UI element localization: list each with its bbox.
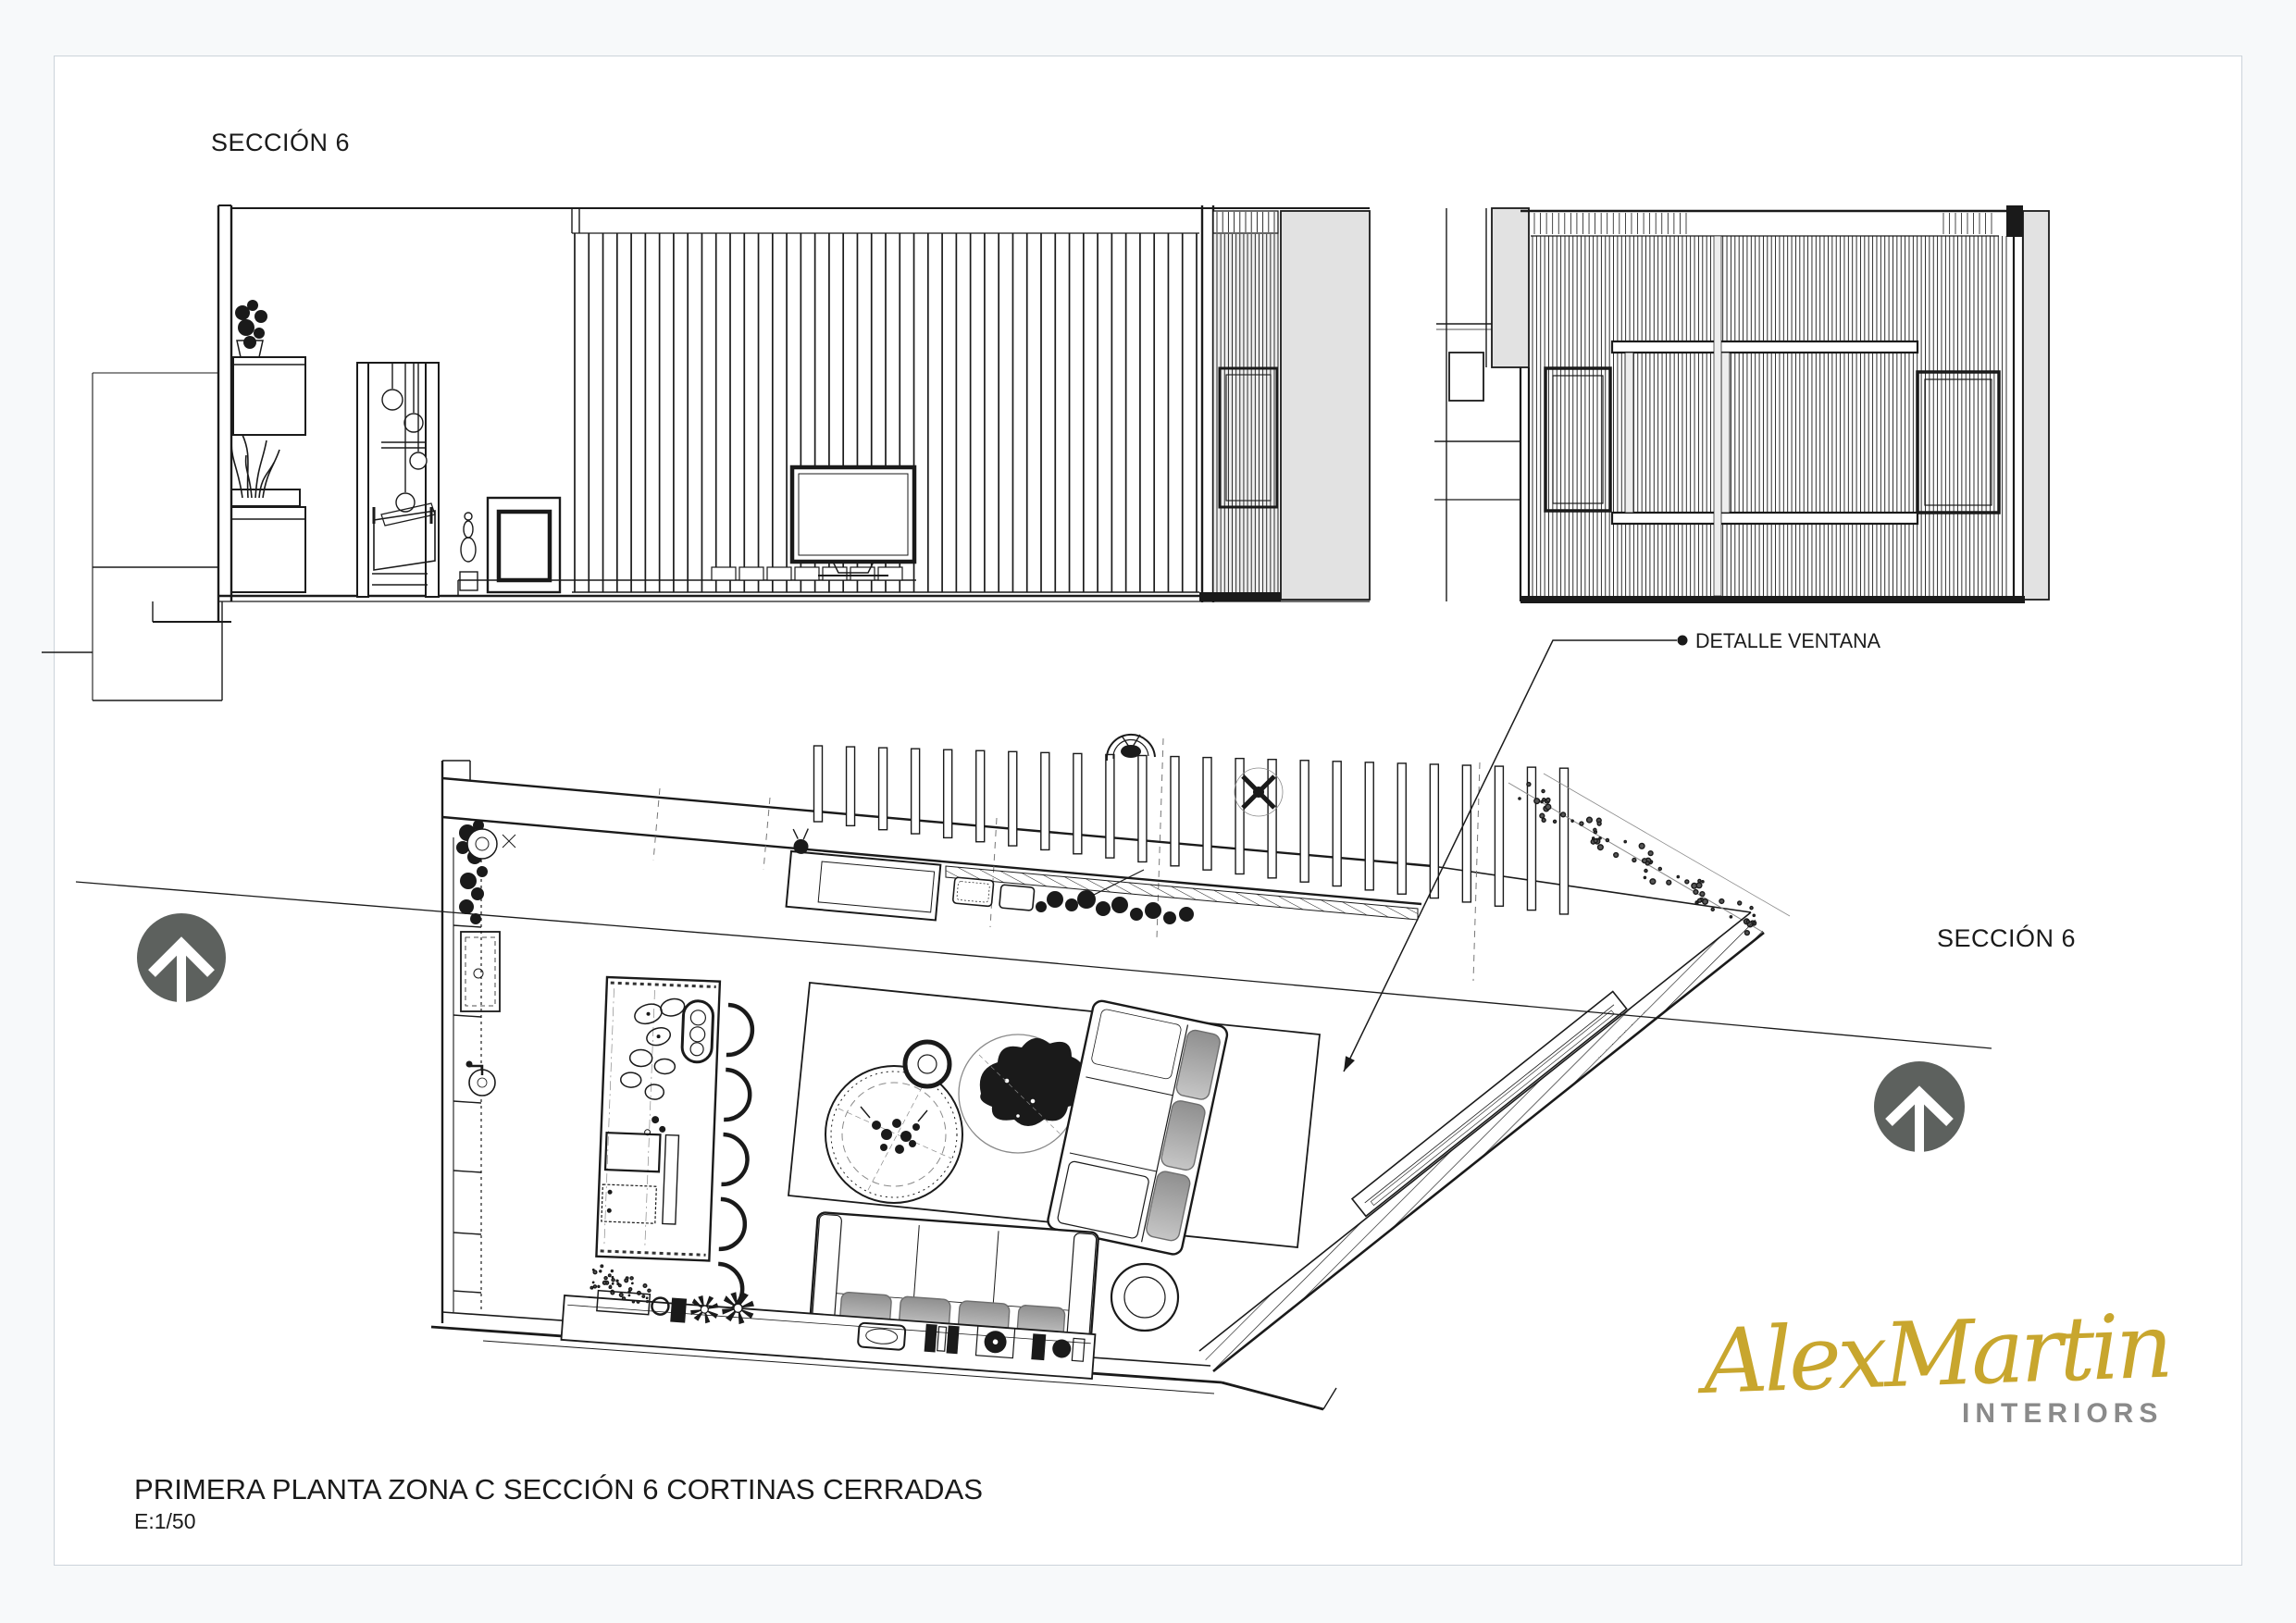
- window-detail: [1434, 205, 2049, 603]
- leader-arrow-icon: [1339, 1056, 1355, 1073]
- kitchen-island: [594, 977, 754, 1315]
- tray: [999, 885, 1035, 911]
- detail-artwork: [1449, 353, 1483, 401]
- leader-line: [1344, 640, 1677, 1072]
- logo: AlexMartin INTERIORS: [1694, 1294, 2171, 1429]
- section-label-right: SECCIÓN 6: [1937, 923, 2076, 952]
- north-arrow-icon: [1874, 1061, 1965, 1152]
- tray: [952, 877, 993, 907]
- stove-burner: [467, 829, 515, 859]
- statue: [460, 513, 478, 590]
- leader-bullet-icon: [1678, 636, 1688, 646]
- right-sofa: [1047, 999, 1229, 1256]
- plant-canopy: [959, 1035, 1084, 1153]
- section-label-top: SECCIÓN 6: [211, 128, 350, 156]
- sideboard: [231, 507, 305, 592]
- section-elevation: [42, 205, 1370, 700]
- elevation-plant-lower: [231, 435, 279, 498]
- elevation-plant-upper: [235, 300, 267, 357]
- north-arrow-icon: [137, 913, 226, 1002]
- kitchen-appliance: [461, 932, 500, 1011]
- drawing-canvas: SECCIÓN 6 SECCIÓN 6 DETALLE VENTANA PRIM…: [0, 0, 2296, 1623]
- bar-stools: [716, 1005, 753, 1315]
- tv-screen: [792, 467, 914, 576]
- kitchen-sink: [466, 1061, 496, 1096]
- logo-subtitle: INTERIORS: [1962, 1398, 2163, 1429]
- detail-curtain-slats: [1533, 236, 2006, 596]
- tv-media-units: [712, 567, 902, 580]
- top-console: [787, 827, 943, 920]
- right-wall-hatch: [1199, 912, 1764, 1371]
- drum-side-table: [1111, 1264, 1178, 1331]
- floating-cabinet: [233, 357, 305, 435]
- detail-window-label: DETALLE VENTANA: [1695, 629, 1880, 652]
- cut-wall-gray: [1281, 211, 1370, 600]
- round-table: [825, 1066, 962, 1203]
- bedroom-doorway: [357, 363, 439, 597]
- logo-signature: AlexMartin: [1694, 1294, 2171, 1414]
- leaning-artwork: [488, 498, 560, 592]
- right-wall-window: [1352, 991, 1627, 1216]
- drawing-scale: E:1/50: [134, 1509, 196, 1533]
- drawing-title: PRIMERA PLANTA ZONA C SECCIÓN 6 CORTINAS…: [134, 1473, 983, 1505]
- vase-ring: [905, 1042, 949, 1086]
- floor-plan: [431, 735, 1790, 1409]
- curtain-slats-header: [572, 208, 1199, 233]
- detail-cut-wall: [1492, 208, 1529, 367]
- architectural-drawing: SECCIÓN 6 SECCIÓN 6 DETALLE VENTANA PRIM…: [0, 0, 2296, 1623]
